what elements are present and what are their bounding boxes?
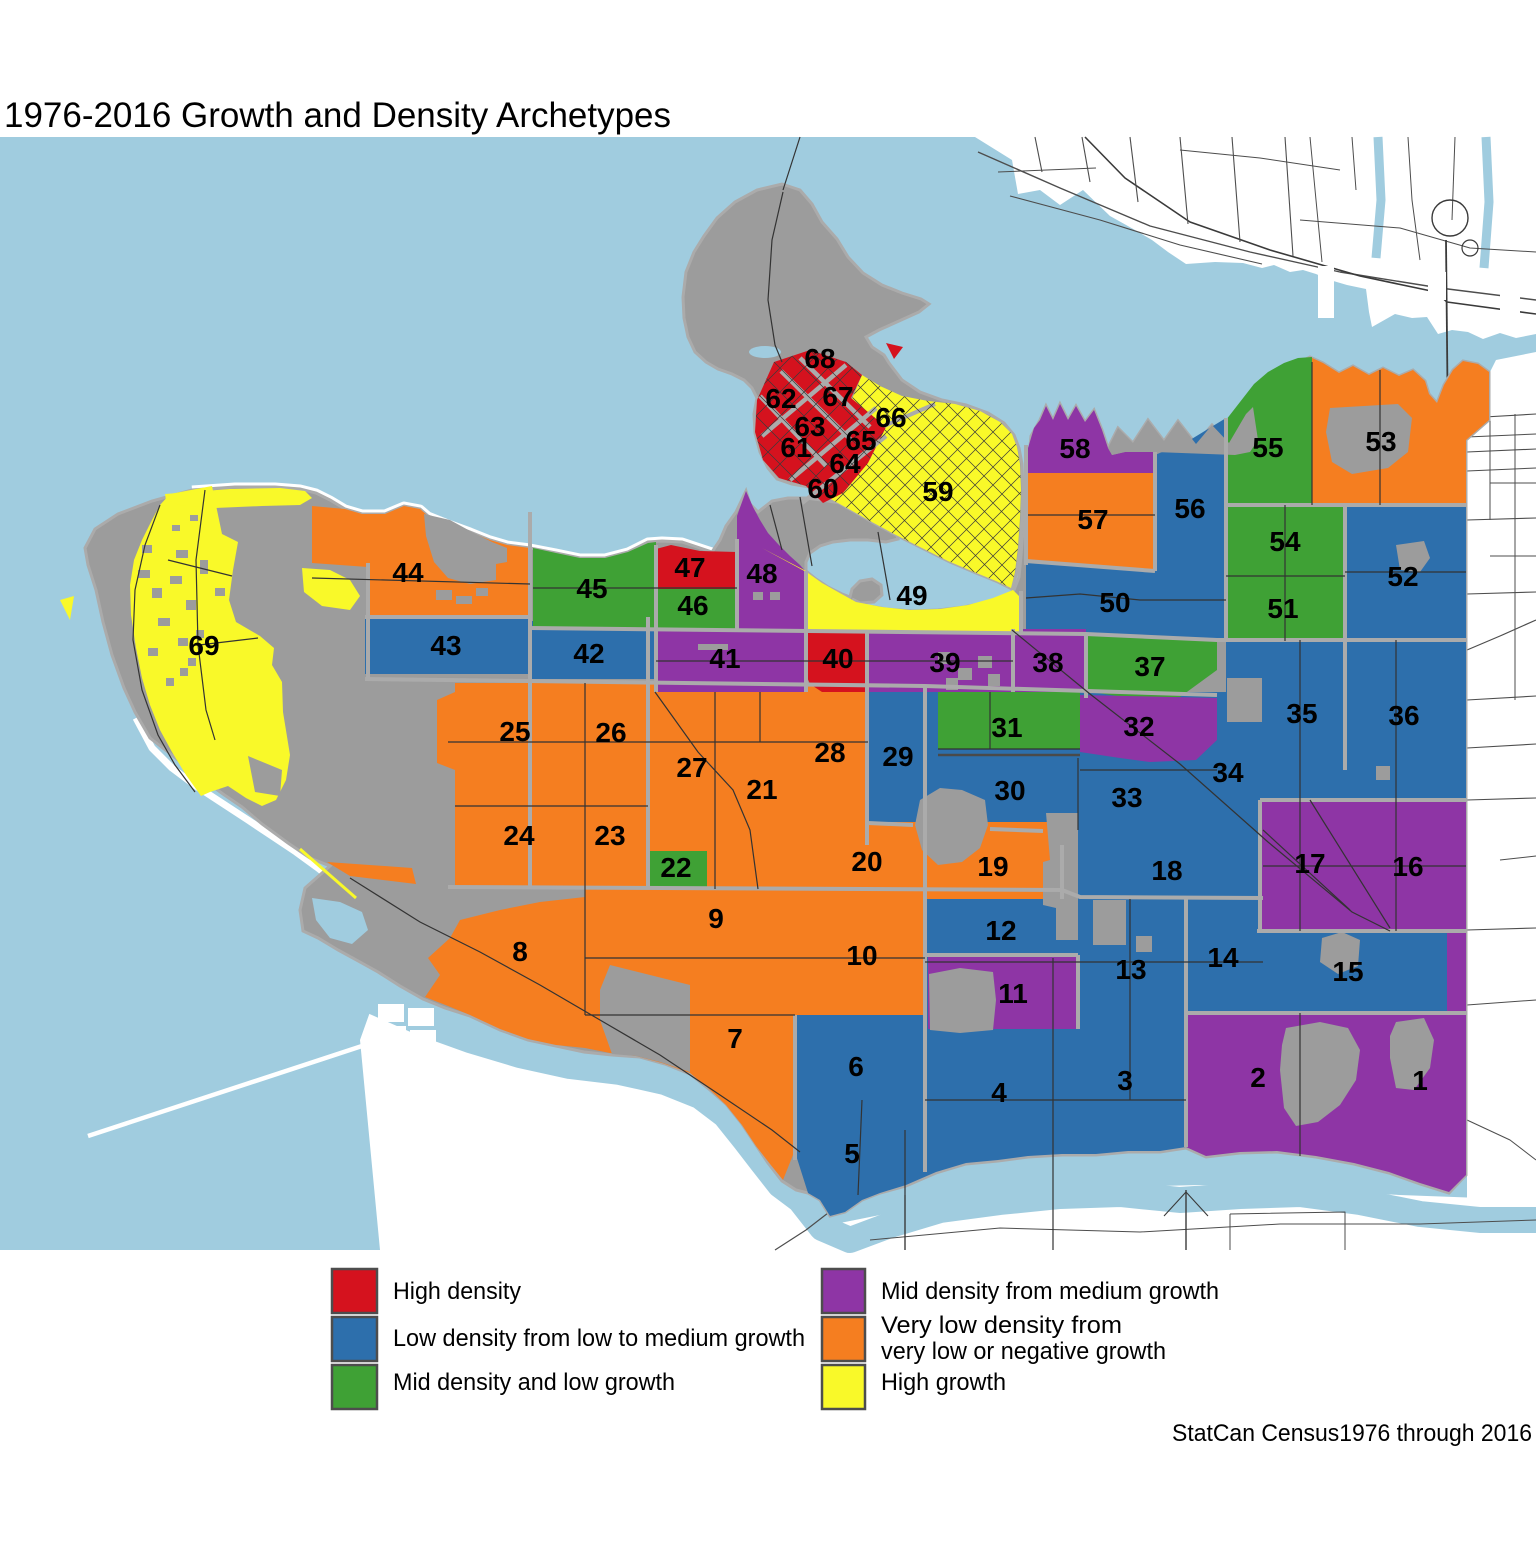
svg-text:6: 6 bbox=[848, 1051, 864, 1082]
svg-text:27: 27 bbox=[676, 752, 707, 783]
svg-text:High density: High density bbox=[393, 1278, 521, 1305]
svg-text:5: 5 bbox=[844, 1138, 860, 1169]
svg-text:32: 32 bbox=[1123, 711, 1154, 742]
svg-text:59: 59 bbox=[922, 476, 953, 507]
svg-text:19: 19 bbox=[977, 851, 1008, 882]
svg-text:69: 69 bbox=[188, 630, 219, 661]
svg-text:68: 68 bbox=[804, 343, 835, 374]
svg-text:1976-2016 Growth and Density A: 1976-2016 Growth and Density Archetypes bbox=[4, 96, 671, 135]
svg-text:14: 14 bbox=[1207, 942, 1239, 973]
svg-text:56: 56 bbox=[1174, 493, 1205, 524]
svg-text:Mid density from medium growth: Mid density from medium growth bbox=[881, 1278, 1219, 1305]
svg-text:48: 48 bbox=[746, 558, 777, 589]
svg-text:40: 40 bbox=[822, 643, 853, 674]
svg-text:57: 57 bbox=[1077, 504, 1108, 535]
svg-text:3: 3 bbox=[1117, 1065, 1133, 1096]
svg-text:43: 43 bbox=[430, 630, 461, 661]
svg-text:36: 36 bbox=[1388, 700, 1419, 731]
svg-text:4: 4 bbox=[991, 1077, 1007, 1108]
svg-text:54: 54 bbox=[1269, 526, 1301, 557]
svg-text:33: 33 bbox=[1111, 782, 1142, 813]
svg-text:26: 26 bbox=[595, 717, 626, 748]
svg-text:12: 12 bbox=[985, 915, 1016, 946]
svg-text:28: 28 bbox=[814, 737, 845, 768]
svg-text:2: 2 bbox=[1250, 1062, 1266, 1093]
svg-text:38: 38 bbox=[1032, 647, 1063, 678]
svg-text:24: 24 bbox=[503, 820, 535, 851]
svg-text:47: 47 bbox=[674, 552, 705, 583]
svg-text:44: 44 bbox=[392, 557, 424, 588]
svg-text:23: 23 bbox=[594, 820, 625, 851]
svg-text:10: 10 bbox=[846, 940, 877, 971]
svg-text:67: 67 bbox=[822, 381, 853, 412]
svg-text:Very low density from: Very low density from bbox=[881, 1312, 1122, 1339]
svg-text:66: 66 bbox=[875, 402, 906, 433]
svg-text:37: 37 bbox=[1134, 651, 1165, 682]
svg-text:StatCan Census1976 through 201: StatCan Census1976 through 2016 bbox=[1172, 1420, 1532, 1447]
svg-text:20: 20 bbox=[851, 846, 882, 877]
svg-text:25: 25 bbox=[499, 716, 530, 747]
svg-text:15: 15 bbox=[1332, 956, 1363, 987]
svg-text:22: 22 bbox=[660, 852, 691, 883]
svg-text:16: 16 bbox=[1392, 851, 1423, 882]
svg-text:52: 52 bbox=[1387, 561, 1418, 592]
svg-text:49: 49 bbox=[896, 580, 927, 611]
svg-text:17: 17 bbox=[1294, 848, 1325, 879]
svg-text:42: 42 bbox=[573, 638, 604, 669]
svg-text:13: 13 bbox=[1115, 954, 1146, 985]
svg-text:30: 30 bbox=[994, 775, 1025, 806]
svg-text:9: 9 bbox=[708, 903, 724, 934]
svg-text:7: 7 bbox=[727, 1023, 743, 1054]
svg-text:8: 8 bbox=[512, 936, 528, 967]
svg-text:58: 58 bbox=[1059, 433, 1090, 464]
svg-text:41: 41 bbox=[709, 643, 740, 674]
svg-text:35: 35 bbox=[1286, 698, 1317, 729]
svg-text:51: 51 bbox=[1267, 593, 1298, 624]
svg-text:21: 21 bbox=[746, 774, 777, 805]
svg-text:18: 18 bbox=[1151, 855, 1182, 886]
svg-text:39: 39 bbox=[929, 647, 960, 678]
svg-text:55: 55 bbox=[1252, 432, 1283, 463]
svg-text:very low or negative growth: very low or negative growth bbox=[881, 1338, 1166, 1365]
svg-text:29: 29 bbox=[882, 741, 913, 772]
svg-text:Low density from low to medium: Low density from low to medium growth bbox=[393, 1325, 805, 1352]
svg-text:34: 34 bbox=[1212, 757, 1244, 788]
svg-text:1: 1 bbox=[1412, 1065, 1428, 1096]
svg-text:53: 53 bbox=[1365, 426, 1396, 457]
svg-text:50: 50 bbox=[1099, 587, 1130, 618]
svg-text:11: 11 bbox=[998, 978, 1028, 1009]
svg-text:High growth: High growth bbox=[881, 1369, 1006, 1396]
svg-text:62: 62 bbox=[765, 383, 796, 414]
svg-text:Mid density and low growth: Mid density and low growth bbox=[393, 1369, 675, 1396]
svg-text:31: 31 bbox=[991, 712, 1022, 743]
svg-text:63: 63 bbox=[794, 411, 825, 442]
svg-text:65: 65 bbox=[845, 425, 876, 456]
svg-text:45: 45 bbox=[576, 573, 607, 604]
svg-text:46: 46 bbox=[677, 590, 708, 621]
